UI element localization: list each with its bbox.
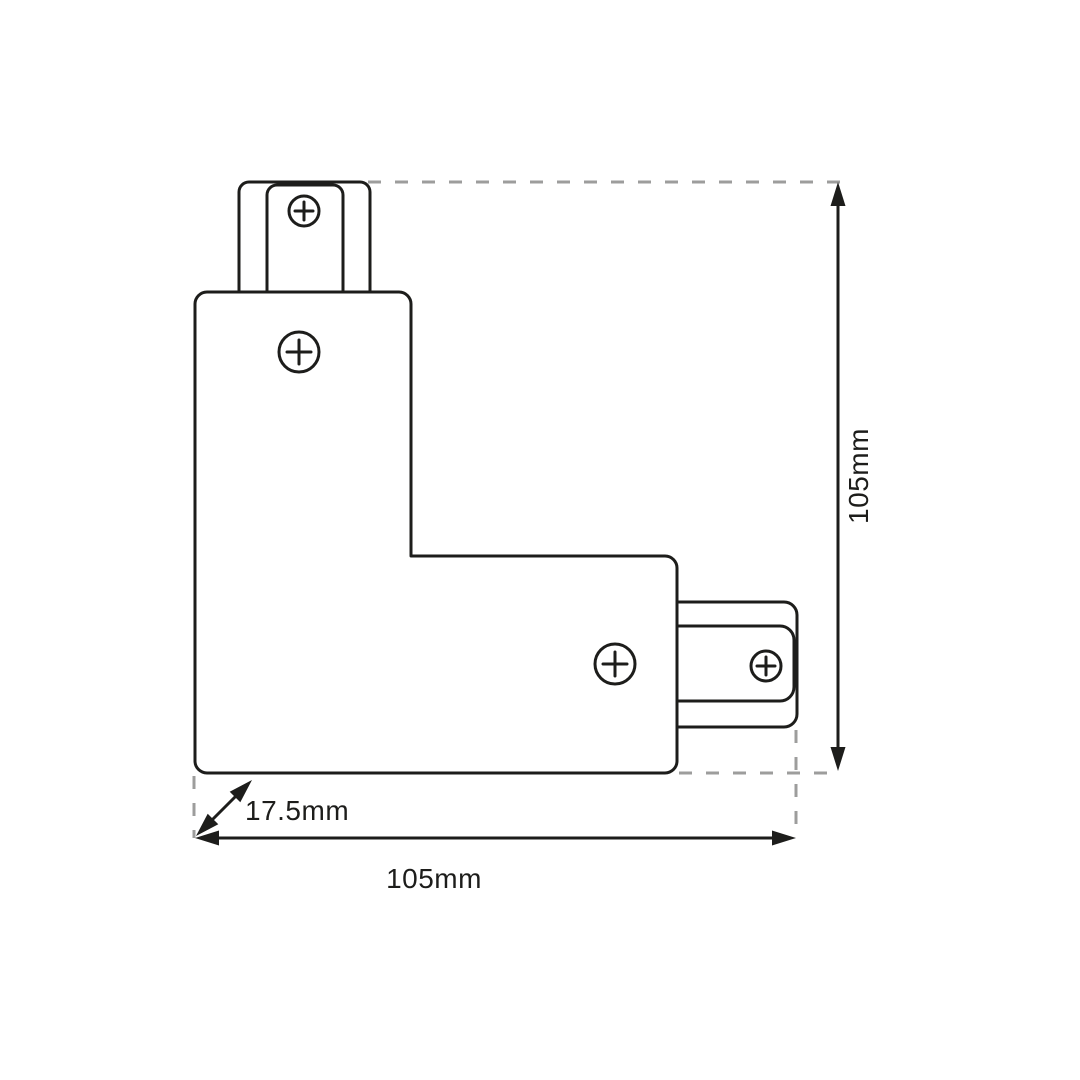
technical-drawing-page: 17.5mm 105mm 105mm: [0, 0, 1080, 1080]
depth-dimension-label: 17.5mm: [245, 795, 349, 826]
width-dimension-label: 105mm: [386, 863, 482, 894]
arrowhead-right-icon: [772, 831, 796, 846]
arrowhead-down-icon: [831, 747, 846, 771]
dimension-line-depth: [212, 796, 236, 820]
connector-geometry: [195, 182, 797, 773]
screw-icon: [289, 196, 319, 226]
screw-icon: [279, 332, 319, 372]
screw-icon: [751, 651, 781, 681]
arrowhead-up-icon: [831, 182, 846, 206]
height-dimension-label: 105mm: [843, 428, 874, 524]
connector-body: [195, 292, 677, 773]
l-connector-drawing: 17.5mm 105mm 105mm: [0, 0, 1080, 1080]
screw-icon: [595, 644, 635, 684]
